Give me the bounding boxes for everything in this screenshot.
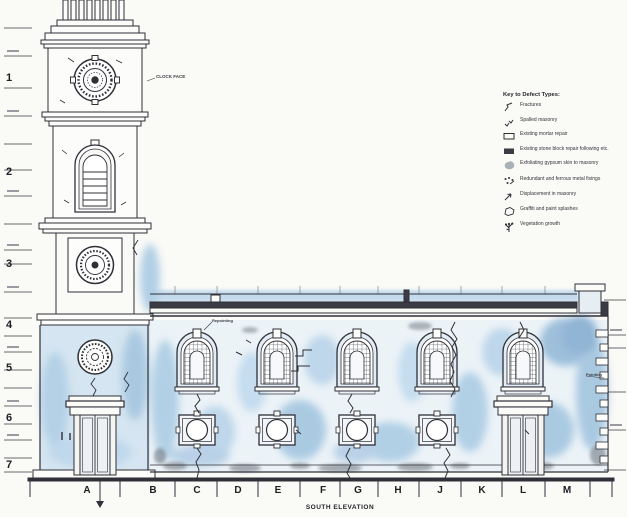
repointing-label: Repointing <box>212 318 233 323</box>
displacement-symbol <box>503 191 520 201</box>
grid-letter: F <box>320 485 326 496</box>
legend-row: Vegetation growth <box>503 221 627 233</box>
fracture-symbol <box>503 102 520 112</box>
spalled-masonry-symbol <box>503 117 520 127</box>
grid-letter: D <box>234 485 241 496</box>
scanned-elevation-page: 1234567 ABCDEFGHJKLM SOUTH ELEVATION CLO… <box>0 0 627 517</box>
metal-fixings-symbol <box>503 176 520 187</box>
grid-letter: E <box>275 485 282 496</box>
legend-label: Spalled masonry <box>520 117 557 123</box>
legend-label: Fractures <box>520 102 541 108</box>
legend-label: Graffiti and paint splashes <box>520 206 578 212</box>
tower-door <box>66 396 124 475</box>
mortar-repair-symbol <box>503 131 520 141</box>
row-number: 3 <box>6 258 12 270</box>
stone-repair-symbol <box>503 146 520 156</box>
legend-row: Spalled masonry <box>503 117 627 127</box>
row-number: 1 <box>6 72 12 84</box>
row-number: 7 <box>6 459 12 471</box>
grid-letter: K <box>478 485 485 496</box>
gypsum-symbol <box>503 160 520 171</box>
vegetation-symbol <box>503 221 520 233</box>
row-number: 4 <box>6 319 12 331</box>
legend-label: Displacement in masonry <box>520 191 576 197</box>
pointing-label: Pointing <box>586 372 602 377</box>
grid-letter: L <box>520 485 526 496</box>
legend-title: Key to Defect Types: <box>503 92 627 98</box>
legend-label: Exfoliating gypsum skin to masonry <box>520 160 598 166</box>
grid-letter: A <box>83 485 90 496</box>
parapet-chimney <box>575 284 608 316</box>
row-number: 2 <box>6 166 12 178</box>
left-level-ticks <box>4 28 32 472</box>
rose-window <box>78 340 112 374</box>
grid-letter: B <box>149 485 156 496</box>
grid-letter: H <box>394 485 401 496</box>
east-door <box>494 396 552 475</box>
legend-row: Redundant and ferrous metal fixings <box>503 176 627 187</box>
legend-label: Existing mortar repair <box>520 131 568 137</box>
lower-clock-face <box>77 247 114 284</box>
legend-row: Existing mortar repair <box>503 131 627 141</box>
grid-letter: G <box>354 485 362 496</box>
legend-label: Redundant and ferrous metal fixings <box>520 176 600 182</box>
row-number: 5 <box>6 362 12 374</box>
legend-row: Displacement in masonry <box>503 191 627 201</box>
graffiti-symbol <box>503 206 520 217</box>
drawing-title: SOUTH ELEVATION <box>306 504 374 511</box>
legend-row: Graffiti and paint splashes <box>503 206 627 217</box>
legend-row: Fractures <box>503 102 627 112</box>
balustrade <box>45 0 145 40</box>
defect-key-legend: Key to Defect Types: Fractures Spalled m… <box>503 92 627 238</box>
elevation-drawing <box>0 0 627 517</box>
grid-letter: J <box>437 485 443 496</box>
legend-row: Existing stone block repair following et… <box>503 146 627 156</box>
grid-letter: C <box>193 485 200 496</box>
clock-face-label: CLOCK FACE <box>156 74 185 79</box>
legend-label: Existing stone block repair following et… <box>520 146 609 152</box>
row-number: 6 <box>6 412 12 424</box>
belfry-louvre <box>75 140 115 212</box>
grid-letter: M <box>563 485 571 496</box>
legend-row: Exfoliating gypsum skin to masonry <box>503 160 627 171</box>
legend-label: Vegetation growth <box>520 221 560 227</box>
